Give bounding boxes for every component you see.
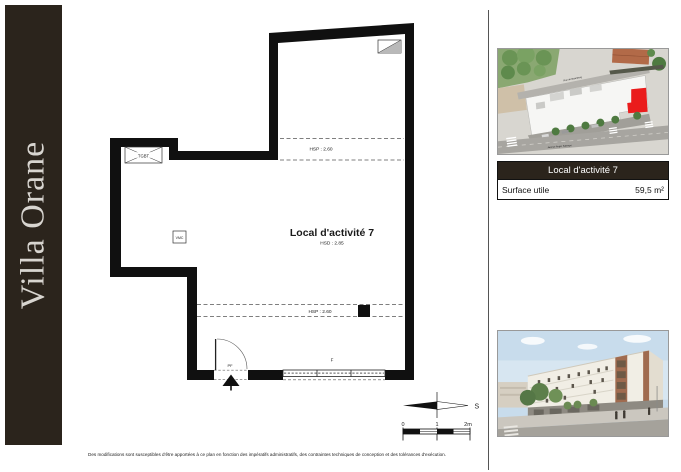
south-label: S (475, 404, 480, 411)
info-table-header: Local d'activité 7 (497, 161, 669, 180)
scale-tick-1: 1 (435, 422, 438, 428)
disclaimer-text: Des modifications sont susceptibles d'êt… (88, 452, 484, 457)
scale-bar: 0 1 2m (401, 422, 472, 441)
window-label: F (331, 358, 334, 363)
crosswalk (504, 425, 519, 436)
door-label: PF (227, 363, 233, 368)
scale-tick-0: 0 (401, 422, 404, 428)
vmc-box: VMC (173, 231, 186, 243)
tgbt-label: TGBT (138, 153, 150, 158)
building-render-thumbnail (497, 330, 669, 437)
scale-tick-2: 2m (464, 422, 472, 428)
north-indicator: S (403, 392, 480, 418)
column (358, 305, 370, 317)
site-plan-thumbnail: Rue de Gutenberg Avenue Roger Salengro (497, 48, 669, 155)
room-title: Local d'activité 7 (290, 227, 374, 239)
vmc-label: VMC (176, 236, 184, 240)
plan-sheet: Villa Orane HSP : 2.60 HSP : 2.60 (0, 0, 681, 472)
surface-row: Surface utile 59,5 m² (497, 180, 669, 200)
info-table: Local d'activité 7 Surface utile 59,5 m² (497, 161, 669, 200)
room-height-label: HSD : 2.85 (320, 241, 344, 247)
ceiling-zone-lower: HSP : 2.60 (197, 305, 404, 317)
hsp-lower-label: HSP : 2.60 (308, 309, 331, 315)
surface-label: Surface utile (502, 185, 549, 195)
walls (110, 23, 414, 380)
hsp-upper-label: HSP : 2.60 (309, 147, 332, 153)
window-band: F (283, 358, 385, 382)
shaft-hatch (378, 40, 401, 53)
tgbt-box: TGBT (125, 147, 162, 163)
ceiling-zone-upper: HSP : 2.60 (280, 139, 404, 161)
adjacent-building (498, 84, 527, 113)
terracotta-building (612, 49, 650, 65)
surface-value: 59,5 m² (635, 185, 664, 195)
